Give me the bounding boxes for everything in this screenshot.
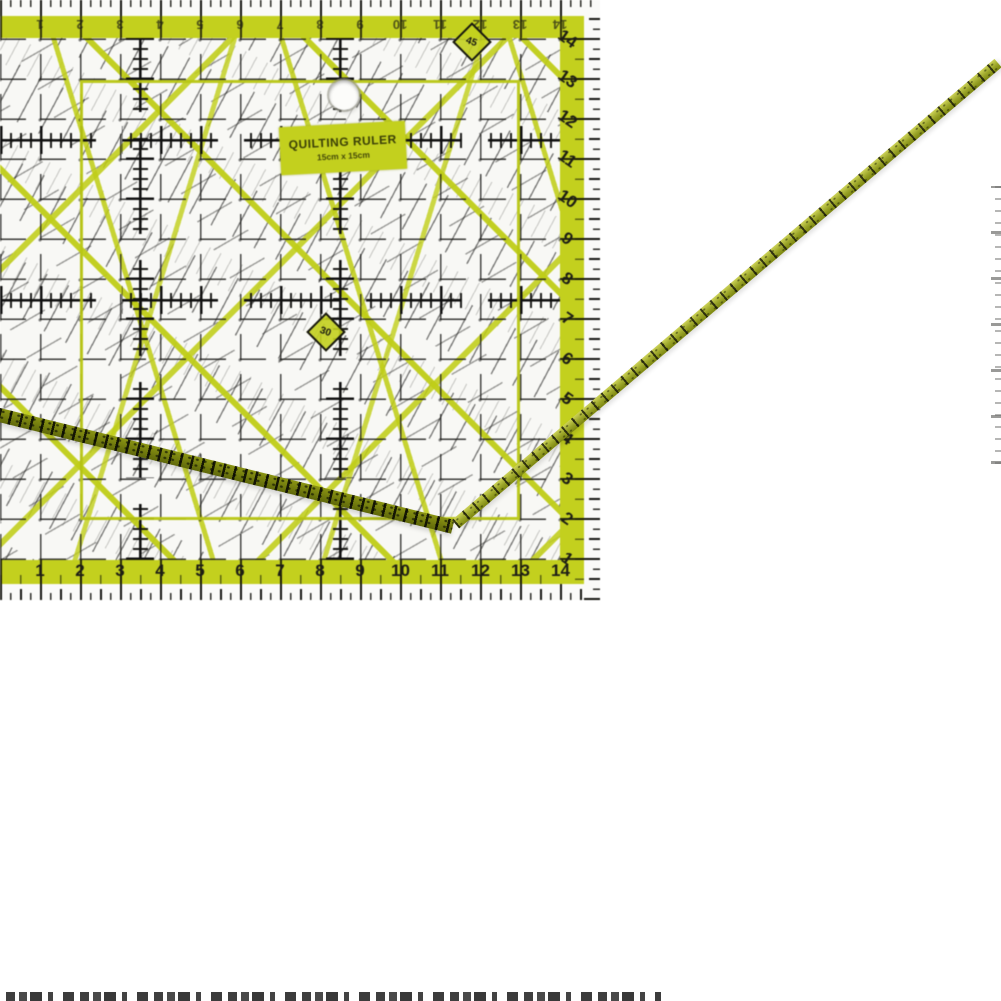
scale-number: 13 — [511, 561, 529, 581]
scale-number: 9 — [351, 561, 369, 581]
scale-number: 8 — [311, 561, 329, 581]
ruler-label: QUILTING RULER 15cm x 15cm — [279, 121, 407, 176]
angle-marker-label: 45 — [465, 35, 479, 49]
scale-number: 7 — [271, 17, 289, 32]
label-subtitle: 15cm x 15cm — [317, 150, 370, 163]
scale-number: 2 — [71, 17, 89, 32]
cropped-caption-fragment — [6, 992, 661, 1001]
scale-number: 14 — [551, 17, 569, 32]
scale-number: 4 — [151, 17, 169, 32]
top-edge-ticks — [0, 0, 600, 16]
scale-number: 9 — [351, 17, 369, 32]
scale-number: 11 — [431, 17, 449, 32]
right-edge-ticks — [584, 0, 600, 600]
scale-number: 10 — [391, 561, 409, 581]
product-photo: 1234567891011121314 1234567891011121314 … — [0, 0, 1001, 1001]
scale-number: 10 — [391, 17, 409, 32]
bottom-edge-ticks — [0, 584, 600, 600]
scale-number: 4 — [151, 561, 169, 581]
scale-number: 7 — [271, 561, 289, 581]
scale-number: 5 — [191, 17, 209, 32]
scale-number: 2 — [71, 561, 89, 581]
scale-number: 8 — [311, 17, 329, 32]
scale-number: 1 — [31, 17, 49, 32]
scale-number: 5 — [191, 561, 209, 581]
ruler-surface: 1234567891011121314 1234567891011121314 … — [0, 0, 600, 600]
scale-number: 3 — [111, 17, 129, 32]
top-scale-band — [0, 16, 600, 38]
scale-number: 13 — [511, 17, 529, 32]
scale-number: 3 — [111, 561, 129, 581]
label-title: QUILTING RULER — [288, 132, 397, 152]
scale-number: 12 — [471, 561, 489, 581]
angle-marker-label: 30 — [319, 325, 333, 339]
quilting-ruler: 1234567891011121314 1234567891011121314 … — [0, 0, 600, 600]
scale-number: 6 — [231, 561, 249, 581]
hanging-hole — [329, 80, 359, 110]
scale-number: 11 — [431, 561, 449, 581]
scale-number: 1 — [31, 561, 49, 581]
scale-number: 6 — [231, 17, 249, 32]
bottom-scale-band — [0, 560, 600, 584]
right-border-tick-fragment — [989, 186, 1001, 464]
